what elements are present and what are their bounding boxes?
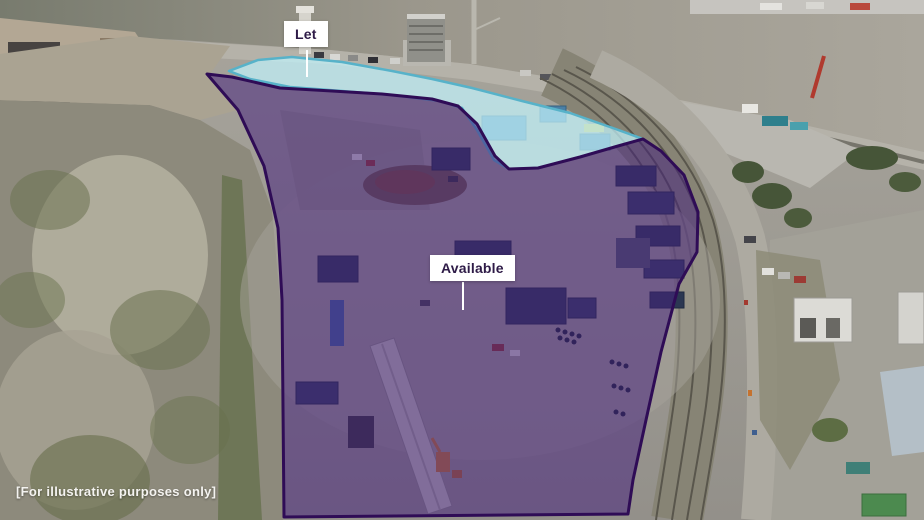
tree [784, 208, 812, 228]
available-label: Available [430, 255, 515, 281]
tree [846, 146, 898, 170]
teal-container [762, 116, 788, 126]
parked-car [778, 272, 790, 279]
parked-car [368, 57, 378, 63]
scrub-patch [10, 170, 90, 230]
parked-car [390, 58, 400, 64]
let-label: Let [284, 21, 328, 47]
parked-car [744, 236, 756, 243]
green-container [862, 494, 906, 516]
far-shore-truck [806, 2, 824, 9]
parked-car [520, 70, 531, 76]
available-leader-line [462, 282, 464, 310]
white-building [898, 292, 924, 344]
flare-tower-cap [296, 6, 314, 13]
aerial-site-image: Let Available [For illustrative purposes… [0, 0, 924, 520]
tree [732, 161, 764, 183]
building-door [826, 318, 840, 338]
available-label-text: Available [441, 260, 504, 276]
teal-container [790, 122, 808, 130]
far-shore-truck [850, 3, 870, 10]
teal-cabin [846, 462, 870, 474]
tree [752, 183, 792, 209]
white-van [742, 104, 758, 113]
office-tower [407, 16, 445, 62]
far-shore-truck [760, 3, 782, 10]
scrub-patch [150, 396, 230, 464]
parked-car [794, 276, 806, 283]
let-label-text: Let [295, 26, 317, 42]
disclaimer-text: [For illustrative purposes only] [16, 484, 216, 499]
bush [812, 418, 848, 442]
office-tower-roof [407, 14, 445, 19]
roadside-item [748, 390, 752, 396]
parked-car [330, 54, 340, 60]
roadside-item [752, 430, 757, 435]
parked-car [762, 268, 774, 275]
building-door [800, 318, 816, 338]
parked-car [314, 52, 324, 58]
roadside-item [744, 300, 748, 305]
let-leader-line [306, 50, 308, 77]
parked-car [348, 55, 358, 61]
tree [889, 172, 921, 192]
scrub-patch [110, 290, 210, 370]
